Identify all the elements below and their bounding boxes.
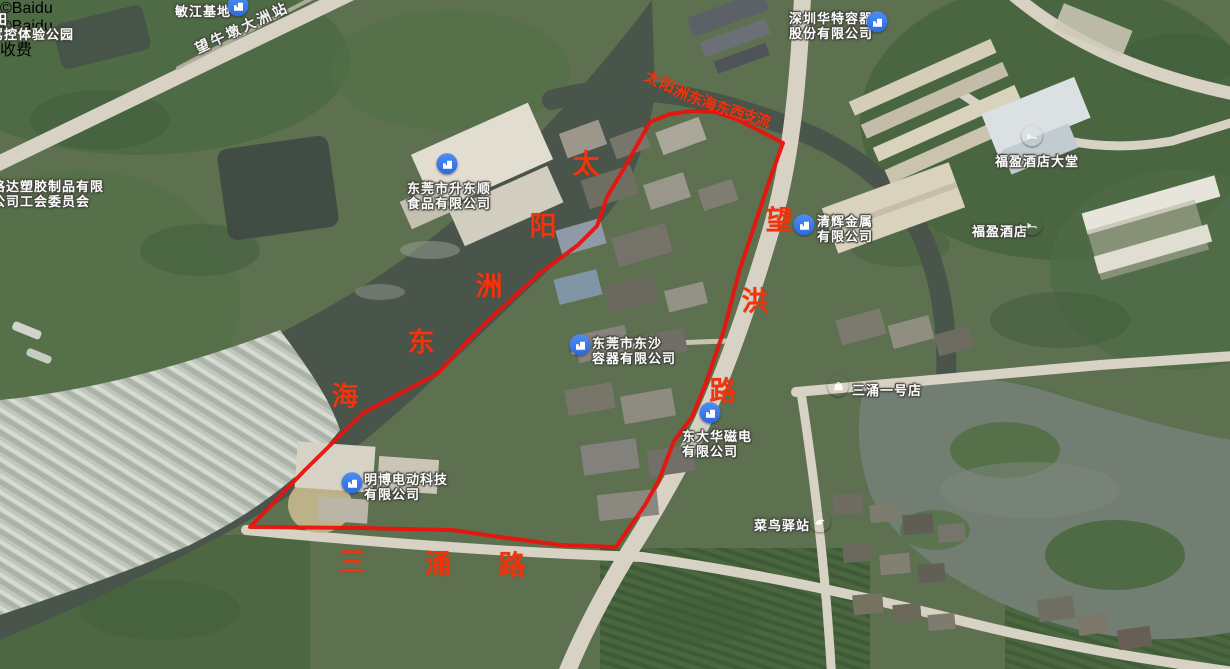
building-pin (867, 11, 888, 32)
dongsha-container-line: 容器有限公司 (592, 351, 676, 366)
dongsha-container[interactable]: 东莞市东沙容器有限公司 (592, 336, 676, 366)
building-glyph (232, 0, 244, 12)
cainiao-pin (810, 511, 831, 532)
taiyangzhou-donghai-river-char: 洲 (476, 274, 503, 301)
tian-label-line: 田 (0, 12, 8, 27)
building-icon[interactable] (867, 11, 888, 38)
building-pin (794, 214, 815, 235)
wanghong-road-char: 路 (710, 379, 737, 406)
bed-glyph (1026, 130, 1038, 142)
building-pin (437, 153, 458, 174)
mingbo-electric[interactable]: 明博电动科技有限公司 (364, 472, 448, 502)
wanghong-road-char: 洪 (742, 289, 769, 316)
baidu-watermark: ©Baidu (0, 18, 1230, 36)
minjiang-base[interactable]: 敏江基地 (175, 4, 231, 19)
labels-layer: 田驾控体验公园敏江基地望牛墩大洲站深圳华特容器股份有限公司东莞市升东顺食品有限公… (0, 0, 1230, 669)
bed-glyph (1026, 219, 1038, 231)
geda-plastic-union-line: 公司工会委员会 (0, 194, 104, 209)
jiakong-experience-park[interactable]: 驾控体验公园 (0, 27, 74, 42)
bag-glyph (832, 380, 844, 392)
shop-pin (828, 375, 849, 396)
fuying-hotel-lobby[interactable]: 福盈酒店大堂 (995, 154, 1079, 169)
tian-label[interactable]: 田 (0, 12, 8, 27)
hotel-pin (1022, 125, 1043, 146)
taiyangzhou-donghai-river-char: 海 (332, 384, 359, 411)
building-glyph (704, 407, 716, 419)
building-glyph (574, 339, 586, 351)
building-glyph (346, 477, 358, 489)
building-icon[interactable] (342, 472, 363, 499)
cainiao-station-line: 菜鸟驿站 (754, 518, 810, 533)
shengdongshun-food-line: 食品有限公司 (407, 196, 491, 211)
building-glyph (798, 219, 810, 231)
mingbo-electric-line: 明博电动科技 (364, 472, 448, 487)
hotel-icon[interactable] (1022, 125, 1043, 152)
wanghong-road-char: 望 (766, 208, 793, 235)
shenzhen-huate-container-line: 深圳华特容器 (789, 11, 873, 26)
fuying-hotel[interactable]: 福盈酒店 (972, 224, 1028, 239)
dongsha-container-line: 东莞市东沙 (592, 336, 676, 351)
qinghui-metal[interactable]: 清辉金属有限公司 (817, 214, 873, 244)
jiakong-experience-park-line: 驾控体验公园 (0, 27, 74, 42)
fuying-hotel-line: 福盈酒店 (972, 224, 1028, 239)
geda-plastic-union-line: 格达塑胶制品有限 (0, 179, 104, 194)
cainiao-icon[interactable] (810, 511, 831, 538)
hotel-pin (1022, 214, 1043, 235)
dongdahua-magnet-line: 有限公司 (682, 444, 752, 459)
dongdahua-magnet-line: 东大华磁电 (682, 429, 752, 444)
shengdongshun-food-line: 东莞市升东顺 (407, 181, 491, 196)
taiyangzhou-donghai-river-char: 太 (573, 152, 600, 179)
sanchong-road-char: 三 (339, 550, 366, 577)
fuying-hotel-lobby-line: 福盈酒店大堂 (995, 154, 1079, 169)
building-icon[interactable] (794, 214, 815, 241)
sanchong-no1-store-line: 三涌一号店 (852, 383, 922, 398)
taiyangzhou-donghai-channel-char: 流 (754, 112, 773, 131)
building-glyph (441, 158, 453, 170)
sanchong-no1-store[interactable]: 三涌一号店 (852, 383, 922, 398)
qinghui-metal-line: 有限公司 (817, 229, 873, 244)
map-canvas[interactable]: 田驾控体验公园敏江基地望牛墩大洲站深圳华特容器股份有限公司东莞市升东顺食品有限公… (0, 0, 1230, 669)
cainiao-station[interactable]: 菜鸟驿站 (754, 518, 810, 533)
building-glyph (871, 16, 883, 28)
shop-icon[interactable] (828, 375, 849, 402)
building-pin (570, 334, 591, 355)
building-icon[interactable] (570, 334, 591, 361)
toll-badge: 收费 (0, 36, 1230, 60)
taiyangzhou-donghai-river-char: 东 (408, 330, 435, 357)
bird-glyph (814, 515, 827, 528)
shengdongshun-food[interactable]: 东莞市升东顺食品有限公司 (407, 181, 491, 211)
minjiang-base-line: 敏江基地 (175, 4, 231, 19)
sanchong-road-char: 路 (499, 553, 526, 580)
building-pin (228, 0, 249, 16)
shenzhen-huate-container[interactable]: 深圳华特容器股份有限公司 (789, 11, 873, 41)
shenzhen-huate-container-line: 股份有限公司 (789, 26, 873, 41)
building-pin (342, 472, 363, 493)
qinghui-metal-line: 清辉金属 (817, 214, 873, 229)
mingbo-electric-line: 有限公司 (364, 487, 448, 502)
sanchong-road-char: 涌 (425, 552, 452, 579)
geda-plastic-union[interactable]: 格达塑胶制品有限公司工会委员会 (0, 179, 104, 209)
building-icon[interactable] (437, 153, 458, 180)
dongdahua-magnet[interactable]: 东大华磁电有限公司 (682, 429, 752, 459)
taiyangzhou-donghai-river-char: 阳 (530, 214, 557, 241)
hotel-icon[interactable] (1022, 214, 1043, 241)
